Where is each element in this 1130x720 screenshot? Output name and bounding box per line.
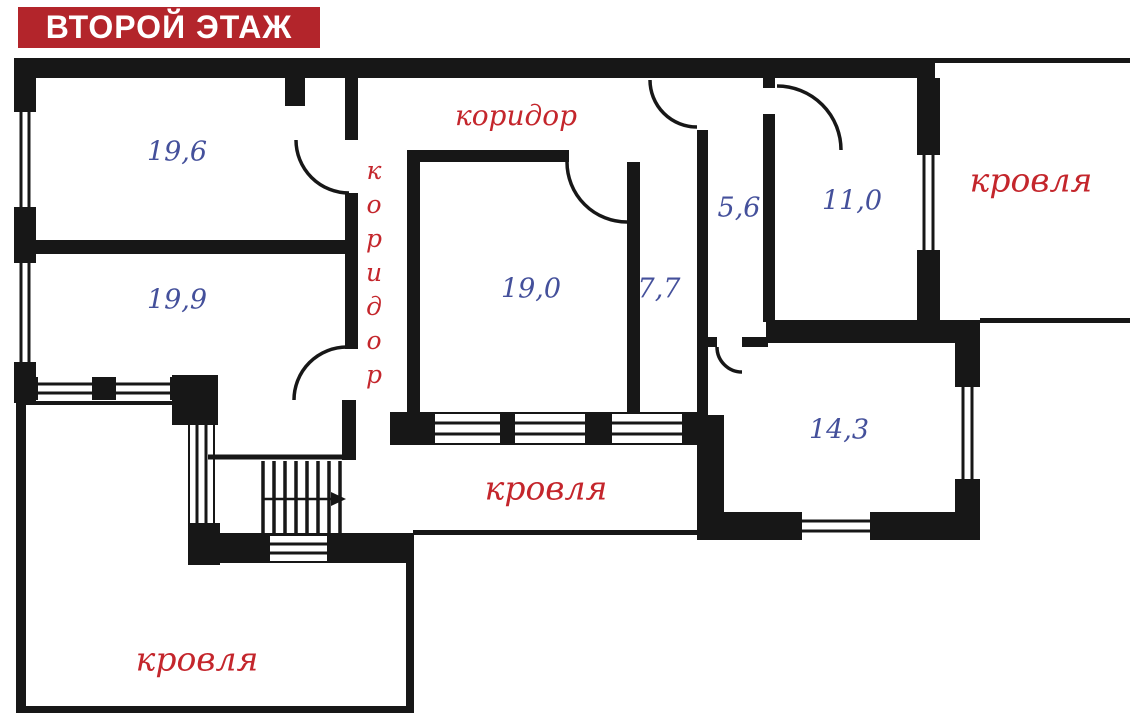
- roof-line-bl-left: [16, 403, 26, 713]
- wall-19-0-top: [407, 150, 569, 162]
- roof-label-top-right: кровля: [970, 164, 1093, 197]
- roof-line-bl-bottom: [16, 706, 414, 713]
- window-19-6-left: [14, 112, 36, 207]
- room-19-9-area-label: 19,9: [147, 287, 207, 314]
- door-arc-19-6: [296, 140, 349, 193]
- window-14-3-bottom: [802, 512, 870, 540]
- window-11-0-right: [917, 155, 940, 250]
- roof-line-bl-top: [16, 401, 218, 405]
- window-19-9-bottom-1: [38, 377, 92, 400]
- wall-between-19-6-and-19-9: [14, 240, 358, 254]
- window-19-0-bottom-1: [435, 414, 500, 443]
- window-stair-bottom: [270, 536, 327, 561]
- door-arc-14-3: [717, 347, 742, 372]
- room-5-6-area-label: 5,6: [718, 195, 761, 222]
- wall-between-5-6-and-11-0: [763, 114, 775, 322]
- corridor-horizontal-label: коридор: [455, 102, 577, 130]
- window-19-9-left: [14, 263, 36, 362]
- roof-line-tr-top: [935, 58, 1130, 63]
- room-19-6-area-label: 19,6: [147, 139, 207, 166]
- wall-14-3-top-right: [742, 337, 768, 347]
- window-stair-left: [190, 425, 213, 523]
- wall-14-3-bottom-right: [870, 512, 980, 540]
- door-arc-19-9: [294, 347, 347, 400]
- wall-corridor-left-upper: [345, 78, 358, 140]
- wall-corridor-left-lower: [342, 400, 356, 460]
- wall-5-6-11-0-top: [763, 78, 775, 88]
- wall-11-0-right-upper: [917, 78, 940, 155]
- floor-title-banner: ВТОРОЙ ЭТАЖ: [18, 7, 320, 48]
- room-14-3-area-label: 14,3: [809, 417, 869, 444]
- wall-corridor-left-mid: [345, 193, 358, 349]
- floor-title: ВТОРОЙ ЭТАЖ: [46, 9, 293, 46]
- window-14-3-right: [955, 387, 980, 479]
- floor-plan-page: ВТОРОЙ ЭТАЖ коридор коридор 19,6 19,9 19…: [0, 0, 1130, 720]
- wall-14-3-top-left: [708, 337, 717, 347]
- window-19-9-bottom-2: [116, 377, 170, 400]
- stair-treads: [263, 461, 340, 533]
- roof-line-mid-bottom: [413, 530, 697, 535]
- wall-14-3-bottom-left: [697, 512, 802, 540]
- wall-11-0-right-lower: [917, 250, 940, 322]
- roof-line-tr-bottom: [980, 318, 1130, 323]
- wall-top: [14, 58, 935, 78]
- wall-stub-top: [285, 78, 305, 106]
- door-arc-corridor-7-7: [650, 80, 697, 127]
- corridor-vertical-label: коридор: [362, 156, 387, 394]
- wall-14-3-right-upper: [955, 343, 980, 387]
- wall-between-7-7-and-5-6: [697, 130, 708, 415]
- wall-corner-19-9: [172, 375, 218, 425]
- roof-label-middle: кровля: [485, 472, 608, 505]
- room-11-0-area-label: 11,0: [822, 188, 882, 215]
- wall-11-0-bottom: [766, 320, 980, 343]
- wall-corridor-right: [407, 150, 420, 415]
- window-19-0-bottom-2: [515, 414, 585, 443]
- door-arc-19-0: [567, 162, 627, 222]
- room-7-7-area-label: 7,7: [638, 276, 681, 303]
- staircase: [208, 457, 353, 533]
- window-7-7-bottom: [612, 414, 682, 443]
- roof-label-bottom-left: кровля: [136, 643, 259, 676]
- room-19-0-area-label: 19,0: [501, 276, 561, 303]
- door-arc-11-0: [777, 86, 841, 150]
- roof-line-bl-right: [406, 560, 414, 713]
